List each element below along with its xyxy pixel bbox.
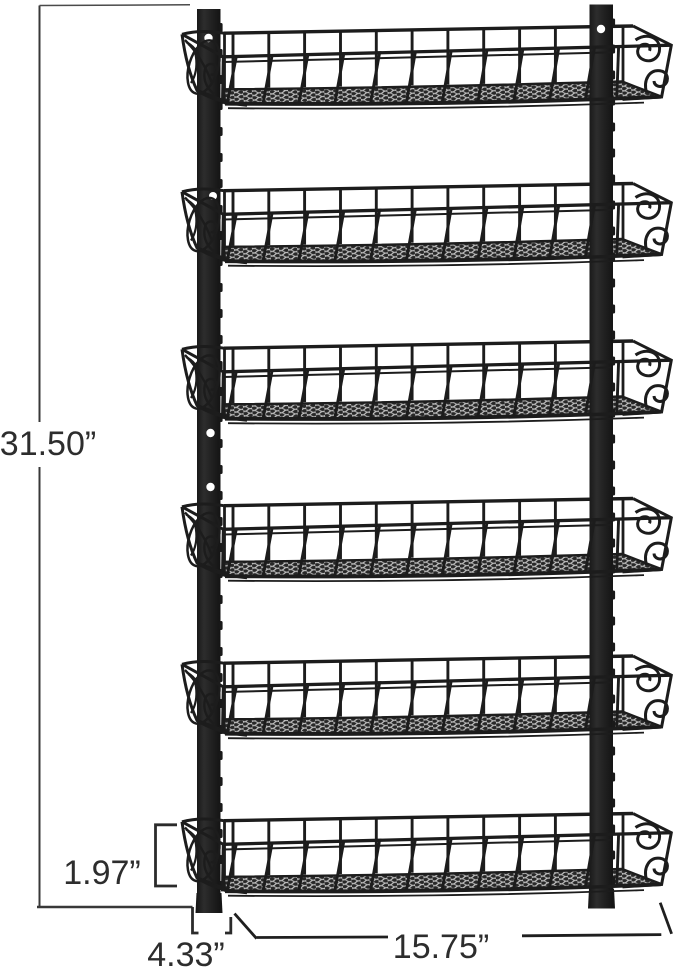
svg-text:31.50”: 31.50” — [0, 425, 96, 463]
svg-text:4.33”: 4.33” — [147, 936, 225, 972]
svg-text:15.75”: 15.75” — [393, 928, 489, 966]
svg-text:1.97”: 1.97” — [63, 854, 141, 892]
